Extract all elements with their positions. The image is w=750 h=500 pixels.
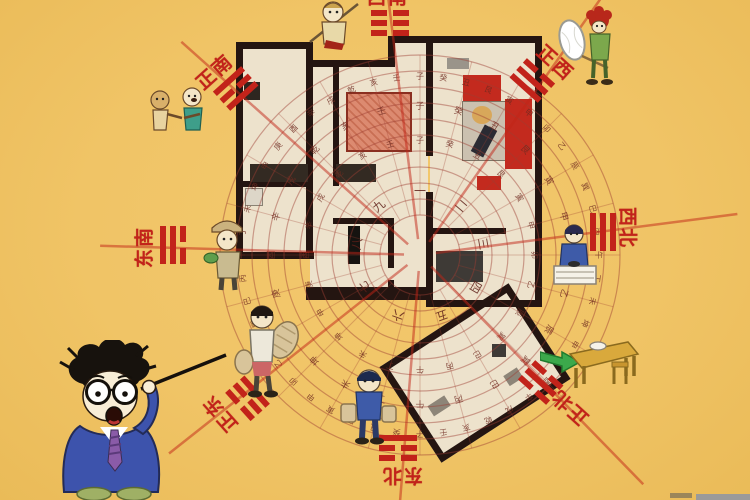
bag-left — [341, 404, 356, 422]
room-bedroom-left — [240, 44, 310, 184]
wall — [333, 218, 393, 224]
direction-label: 东北 — [381, 464, 423, 491]
wall — [426, 300, 542, 307]
wall — [306, 287, 428, 300]
svg-text:卯: 卯 — [540, 123, 552, 135]
door-leaf-dark — [348, 226, 360, 264]
feng-shui-scene: 一二三四五六七八九子癸丑艮寅甲卯乙辰巽巳丙午丁未坤申庚酉辛戌乾亥壬子癸丑艮寅甲卯… — [0, 0, 750, 500]
watermark-bar — [696, 494, 750, 500]
wall — [388, 280, 394, 292]
bath-fixture — [245, 188, 263, 206]
direction-label: 西北 — [616, 207, 643, 249]
wall — [388, 36, 542, 43]
svg-text:六: 六 — [390, 307, 406, 324]
wall — [426, 192, 433, 307]
bed-headboard-red — [463, 75, 501, 101]
bed-pillow — [472, 106, 492, 124]
watermark-text-remnant — [670, 493, 692, 498]
svg-text:辰: 辰 — [569, 160, 581, 171]
svg-text:巽: 巽 — [579, 181, 590, 192]
red-rug — [477, 176, 501, 190]
blue-jacket — [356, 392, 382, 420]
schoolboy-with-bags — [336, 366, 402, 448]
clerk-at-desk — [550, 222, 600, 290]
svg-text:寅: 寅 — [542, 174, 556, 187]
wall — [306, 42, 313, 259]
wall — [388, 218, 394, 268]
room-middle-notch — [390, 40, 428, 64]
sack-carrier — [228, 300, 306, 398]
svg-text:乙: 乙 — [556, 140, 568, 152]
wardrobe-red — [505, 99, 532, 169]
white-counter — [554, 266, 596, 284]
green-plant — [204, 253, 218, 263]
wall — [306, 60, 392, 67]
svg-text:甲: 甲 — [558, 211, 570, 222]
bowl — [590, 342, 606, 350]
svg-text:坤: 坤 — [307, 354, 321, 368]
dining-table-with-green-arrow — [540, 332, 645, 398]
svg-text:坤: 坤 — [579, 318, 591, 329]
trigram-icon — [160, 226, 190, 264]
swordsman-figure — [300, 0, 370, 54]
monkey-pair — [144, 84, 219, 138]
bag-right — [382, 406, 396, 422]
svg-text:坤: 坤 — [332, 330, 345, 343]
wall — [426, 36, 433, 156]
butterfly-net-kid — [558, 6, 626, 90]
svg-text:寅: 寅 — [325, 404, 337, 417]
svg-text:申: 申 — [314, 307, 327, 319]
svg-text:五: 五 — [434, 307, 450, 324]
wall — [388, 36, 395, 67]
svg-text:未: 未 — [357, 348, 369, 361]
svg-text:甲: 甲 — [305, 391, 317, 403]
small-table-dark — [492, 344, 506, 357]
direction-label: 东南 — [130, 226, 157, 268]
radiator-grey — [447, 58, 469, 69]
sofa-dark — [436, 251, 483, 282]
feng-shui-master-pointing — [38, 340, 228, 500]
bed-pink — [346, 92, 412, 152]
wall — [426, 228, 506, 234]
door-mark — [427, 395, 450, 416]
trigram-icon — [371, 10, 409, 40]
wardrobe-dark — [336, 164, 376, 182]
wardrobe-dark — [250, 164, 308, 182]
soldier-figure — [198, 212, 256, 294]
direction-label: 西南 — [367, 0, 409, 10]
svg-text:未: 未 — [587, 296, 599, 306]
svg-text:庚: 庚 — [269, 288, 282, 300]
